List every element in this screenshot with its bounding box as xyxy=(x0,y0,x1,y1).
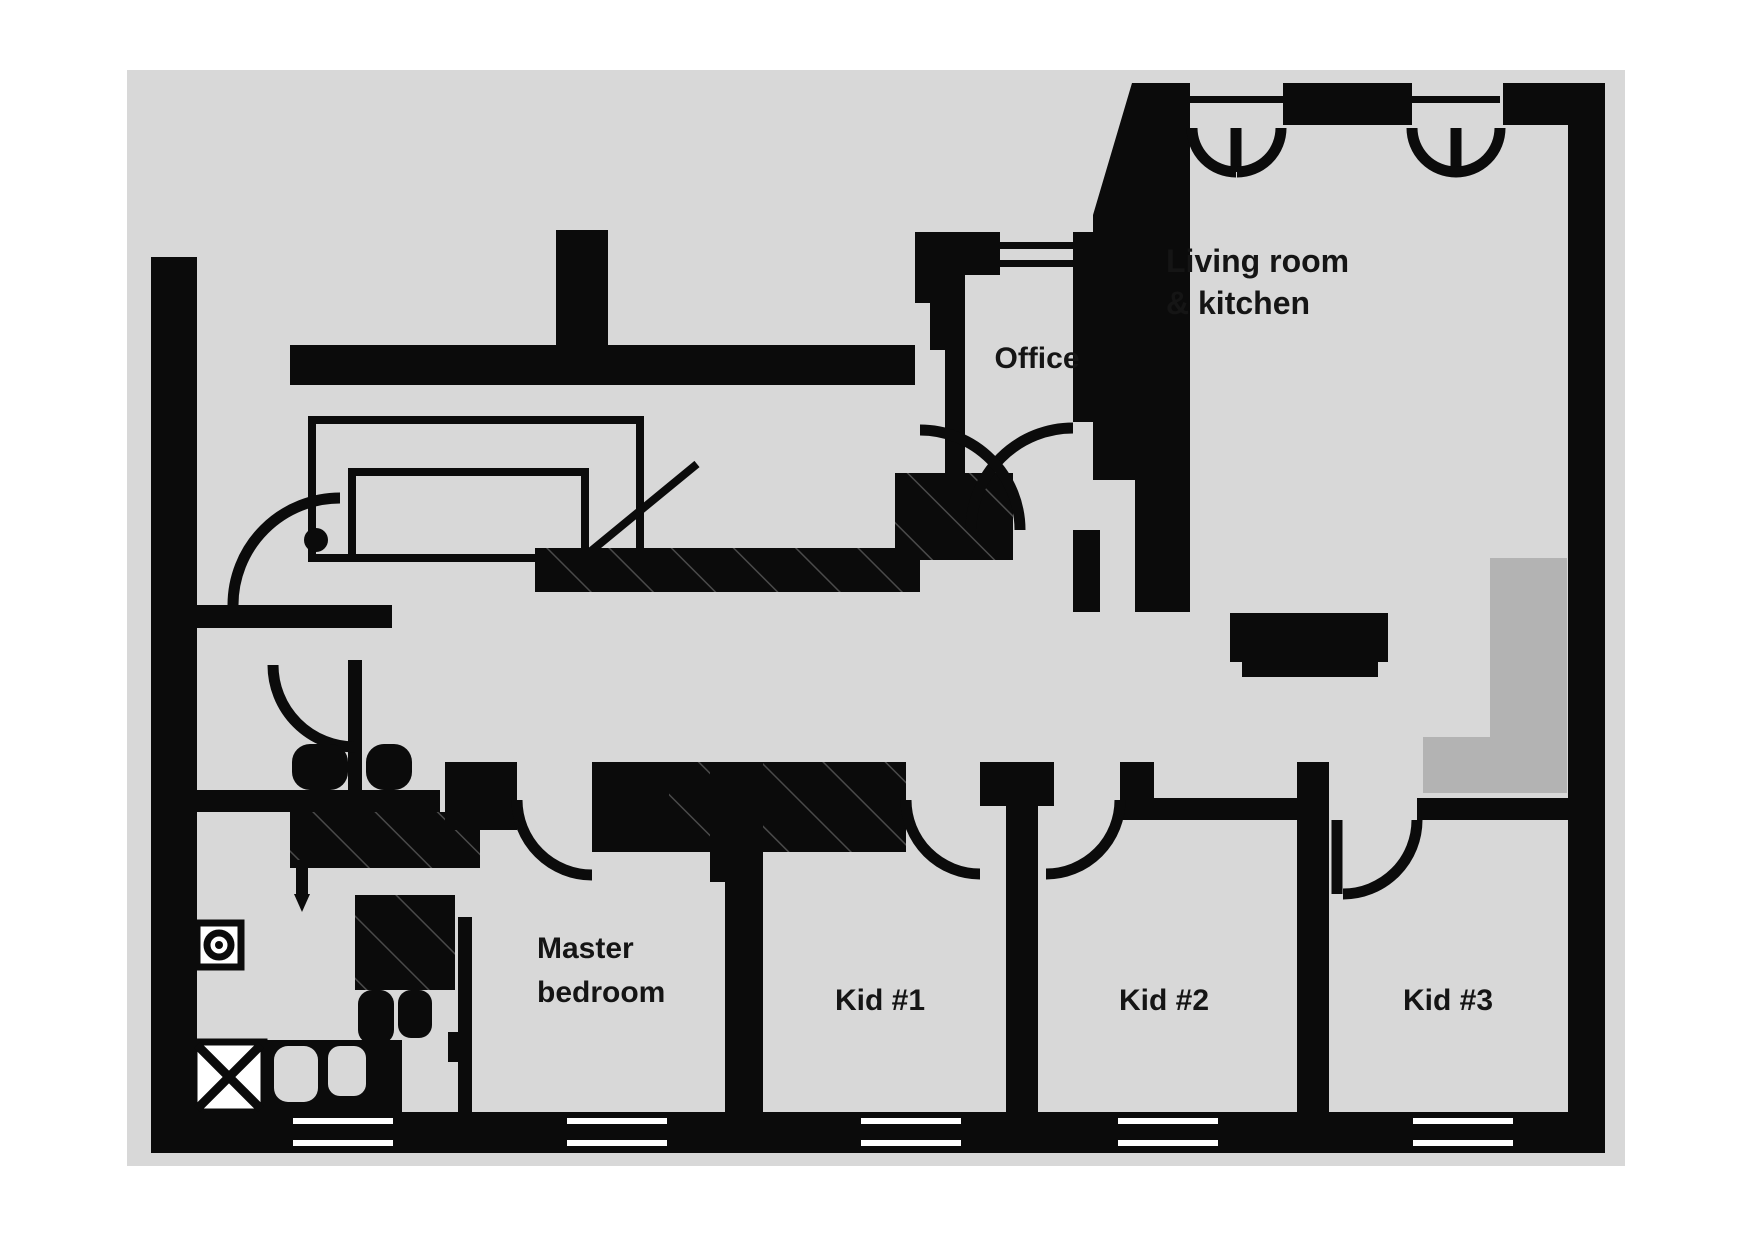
corridor-closet-hatched xyxy=(669,762,906,852)
sink-basin xyxy=(328,1046,366,1096)
corridor-wall-block xyxy=(1120,762,1154,820)
floor-plan-page: Living room & kitchen Office Master bedr… xyxy=(0,0,1754,1239)
living-kitchen-label-line1: Living room xyxy=(1166,243,1349,279)
toilet-icon xyxy=(292,744,348,790)
right-outer-wall xyxy=(1568,125,1605,1153)
hall-lower-wall-hatched xyxy=(535,548,920,592)
left-outer-wall xyxy=(151,257,197,1153)
office-right-wall-lower xyxy=(1073,530,1100,612)
office-step-wall xyxy=(915,275,965,303)
top-wall-segment xyxy=(1283,83,1412,125)
sink-icon xyxy=(358,990,394,1044)
bathroom-top-wall xyxy=(197,605,392,628)
divider-master-kid1 xyxy=(725,882,763,1112)
divider-kid2-kid3 xyxy=(1297,762,1329,1112)
office-left-wall xyxy=(945,347,965,477)
window-sill-2 xyxy=(1412,96,1500,103)
master-bedroom-label-line1: Master xyxy=(537,932,634,965)
hall-top-wall xyxy=(290,345,915,385)
bathroom-inner-wall xyxy=(348,660,362,795)
office-window-line xyxy=(1000,242,1073,249)
corridor-wall-block xyxy=(445,762,517,830)
hall-wall-stub xyxy=(556,230,608,348)
kid1-label: Kid #1 xyxy=(835,984,925,1017)
kid2-label: Kid #2 xyxy=(1119,984,1209,1017)
office-label: Office xyxy=(994,342,1079,375)
office-window-line xyxy=(1000,260,1073,267)
divider-master-kid1 xyxy=(710,762,763,882)
window-sill-1 xyxy=(1190,96,1283,103)
door-hinge-dot xyxy=(304,528,328,552)
corridor-wall-segment xyxy=(1417,798,1568,820)
office-right-wall-upper xyxy=(1073,232,1100,422)
closet-hatched xyxy=(355,895,455,990)
master-bedroom-wall-notch xyxy=(448,1032,472,1062)
faucet-icon xyxy=(296,860,308,894)
kitchen-counter-block xyxy=(1242,662,1378,677)
floor-plan: Living room & kitchen Office Master bedr… xyxy=(0,0,1754,1239)
top-right-corner-wall xyxy=(1503,83,1605,125)
burner-icon xyxy=(215,941,223,949)
kid3-label: Kid #3 xyxy=(1403,984,1493,1017)
master-bedroom-left-wall xyxy=(458,917,472,1112)
office-step-wall xyxy=(930,300,965,350)
corridor-wall-segment xyxy=(1150,798,1297,820)
door-jamb-block xyxy=(980,762,1054,806)
toilet-icon xyxy=(366,744,412,790)
kitchen-counter-block xyxy=(1230,613,1388,662)
master-bedroom-label-line2: bedroom xyxy=(537,976,665,1009)
office-closet-hatched xyxy=(895,473,1013,560)
office-top-wall xyxy=(915,232,1000,275)
sink-icon xyxy=(398,990,432,1038)
kitchen-counter xyxy=(1230,613,1388,677)
corridor-wall-block xyxy=(592,762,669,852)
living-kitchen-label-line2: & kitchen xyxy=(1166,285,1310,321)
bathroom-mid-wall xyxy=(197,790,440,812)
sink-basin xyxy=(274,1046,318,1102)
divider-kid1-kid2 xyxy=(1006,806,1038,1112)
